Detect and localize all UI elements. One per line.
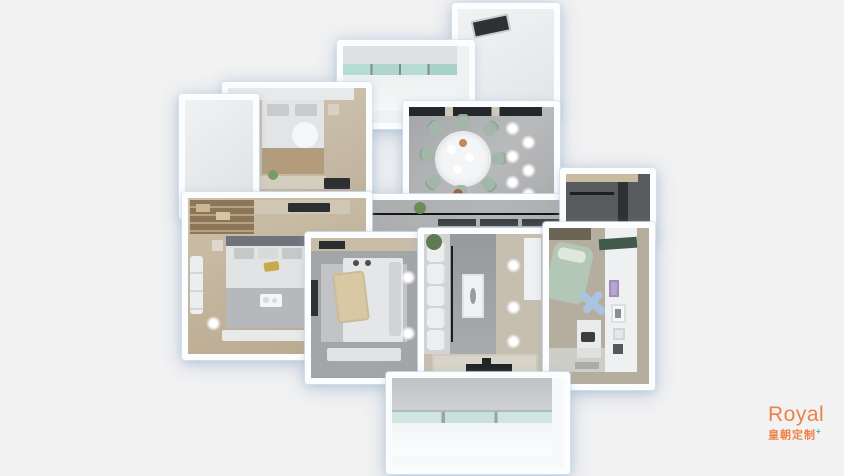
balcony-back-wall: [392, 378, 552, 410]
second-bedroom: [305, 232, 435, 384]
glass-roof-panels: [343, 64, 457, 75]
art-canvas: [462, 274, 484, 318]
pillow: [557, 246, 587, 264]
headboard-items: [353, 260, 359, 266]
brand-subtitle-text: 皇朝定制: [768, 430, 816, 442]
floor-light-area: [549, 348, 605, 372]
balcony-bottom: [386, 372, 570, 474]
dining-chair: [457, 114, 469, 129]
ceiling-spotlight: [505, 121, 520, 136]
sofa-module: [427, 330, 446, 350]
pillow: [258, 248, 278, 259]
headboard-wall: [549, 228, 591, 240]
poster-purple: [609, 280, 619, 297]
headboard-items: [365, 260, 371, 266]
qr-frame: [613, 344, 623, 354]
dining-chair: [481, 119, 500, 138]
ceiling-spotlight: [206, 316, 221, 331]
ceiling-spotlight: [521, 135, 536, 150]
frame-sketch: [615, 309, 621, 318]
sofa-module: [427, 264, 446, 284]
centerpiece: [459, 139, 467, 147]
breakfast-tray: [260, 294, 282, 307]
nightstand: [212, 240, 223, 251]
foot-cabinet: [254, 176, 326, 189]
tv-console: [324, 178, 350, 189]
ceiling-light-fixture: [471, 13, 512, 39]
bed: [262, 100, 324, 174]
tv-panel: [319, 241, 345, 249]
dining-chair: [420, 149, 435, 161]
picture-frame: [613, 328, 625, 340]
storage-panel: [438, 219, 476, 226]
desk-chair: [581, 332, 595, 342]
pillow-column: [389, 262, 401, 336]
pillow: [282, 248, 302, 259]
floorplan-scene: Royal 皇朝定制+: [0, 0, 844, 476]
closet-column: [618, 182, 628, 226]
plant: [426, 234, 442, 250]
tray-dish: [263, 297, 269, 303]
sofa-module: [427, 308, 446, 328]
storage-panel: [480, 219, 518, 226]
wall-panel: [311, 280, 318, 316]
chaise-bench: [190, 256, 203, 314]
plate: [465, 153, 474, 162]
ceiling-spotlight: [505, 175, 520, 190]
dining-chair: [423, 173, 442, 192]
pillow: [267, 104, 289, 116]
closet-top-shelf: [566, 174, 638, 182]
brand-name: Royal: [768, 404, 838, 425]
foot-bench: [327, 348, 401, 361]
brand-plus-mark: +: [816, 427, 822, 436]
dining-table: [437, 133, 489, 185]
door-panel: [524, 238, 541, 300]
tv-panel: [288, 203, 330, 212]
plant: [268, 170, 278, 180]
glass-railing: [392, 410, 552, 423]
plate: [447, 145, 456, 154]
wardrobe-shelving: [190, 200, 254, 234]
ceiling-spotlight: [401, 326, 416, 341]
ceiling-spotlight: [401, 270, 416, 285]
ceiling-spotlight: [506, 258, 521, 273]
ceiling-spotlight: [506, 334, 521, 349]
tray-dish: [272, 298, 277, 303]
apartment-floorplan: [0, 0, 844, 476]
ceiling-spotlight: [505, 149, 520, 164]
picture-frame: [611, 304, 626, 323]
balcony-floor: [392, 423, 552, 456]
dining-chair: [479, 175, 498, 194]
dining-chair: [425, 118, 444, 137]
storage-box: [196, 204, 210, 212]
floor-lamp-pole: [451, 246, 453, 342]
ceiling-spotlight: [521, 163, 536, 178]
window-band: [409, 107, 542, 116]
kids-room: [543, 222, 655, 390]
pillow: [295, 104, 317, 116]
storage-box: [216, 212, 230, 220]
plant: [414, 202, 426, 214]
nightstand: [328, 104, 339, 115]
brand-subtitle: 皇朝定制+: [768, 428, 838, 442]
closet-rail: [570, 192, 614, 195]
brand-logo: Royal 皇朝定制+: [768, 404, 838, 442]
plate: [453, 165, 462, 174]
pillow: [234, 248, 254, 259]
ceiling-spotlight: [506, 300, 521, 315]
accent-pillow: [263, 261, 279, 272]
sofa-module: [427, 286, 446, 306]
round-duvet: [292, 122, 318, 148]
beige-throw: [332, 270, 370, 324]
balcony-back-wall: [343, 46, 457, 64]
art-sketch: [470, 288, 476, 304]
